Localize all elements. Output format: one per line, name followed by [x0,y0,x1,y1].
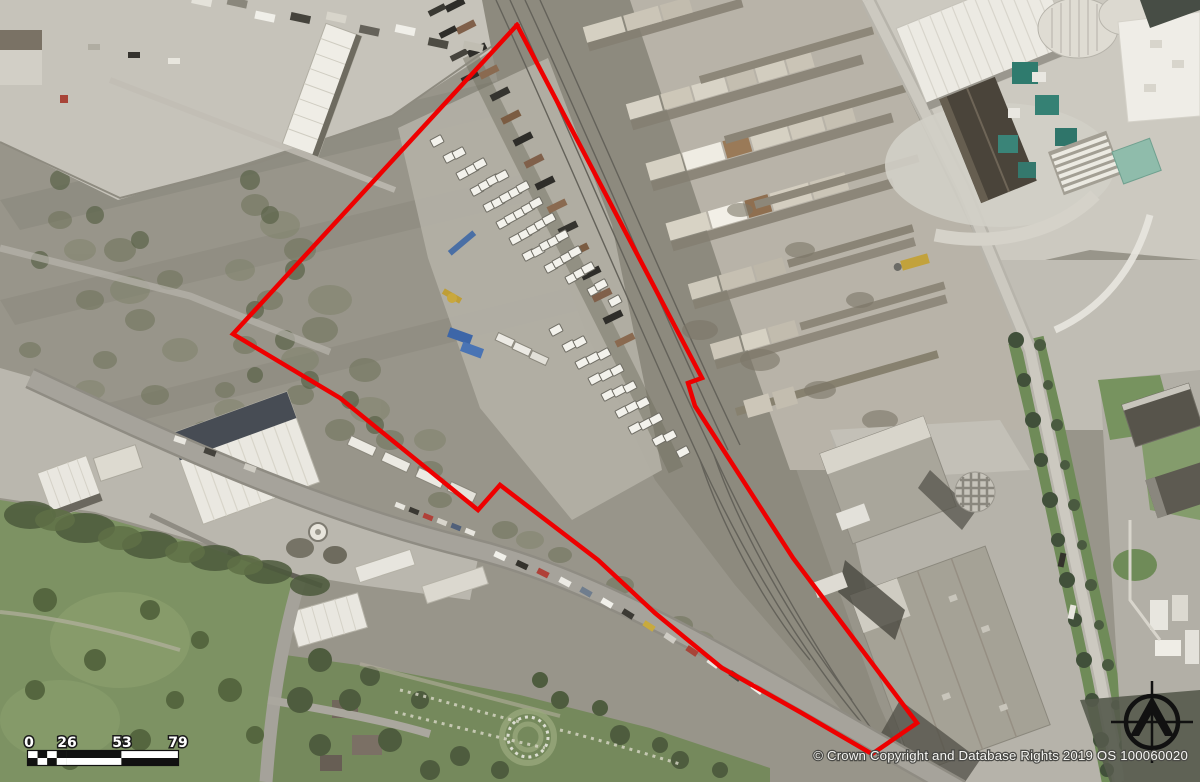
map-viewport: 0 26 53 79 © Crown Copyright and Databas… [0,0,1200,782]
checker-circle [955,472,995,512]
scale-tick-79: 79 [168,735,187,751]
scale-tick-26: 26 [57,735,76,751]
scale-bar-blocks [28,751,179,766]
scale-tick-53: 53 [112,735,131,751]
scale-tick-0: 0 [24,735,34,751]
copyright-notice: © Crown Copyright and Database Rights 20… [813,748,1188,763]
aerial-photo: 0 26 53 79 © Crown Copyright and Databas… [0,0,1200,782]
